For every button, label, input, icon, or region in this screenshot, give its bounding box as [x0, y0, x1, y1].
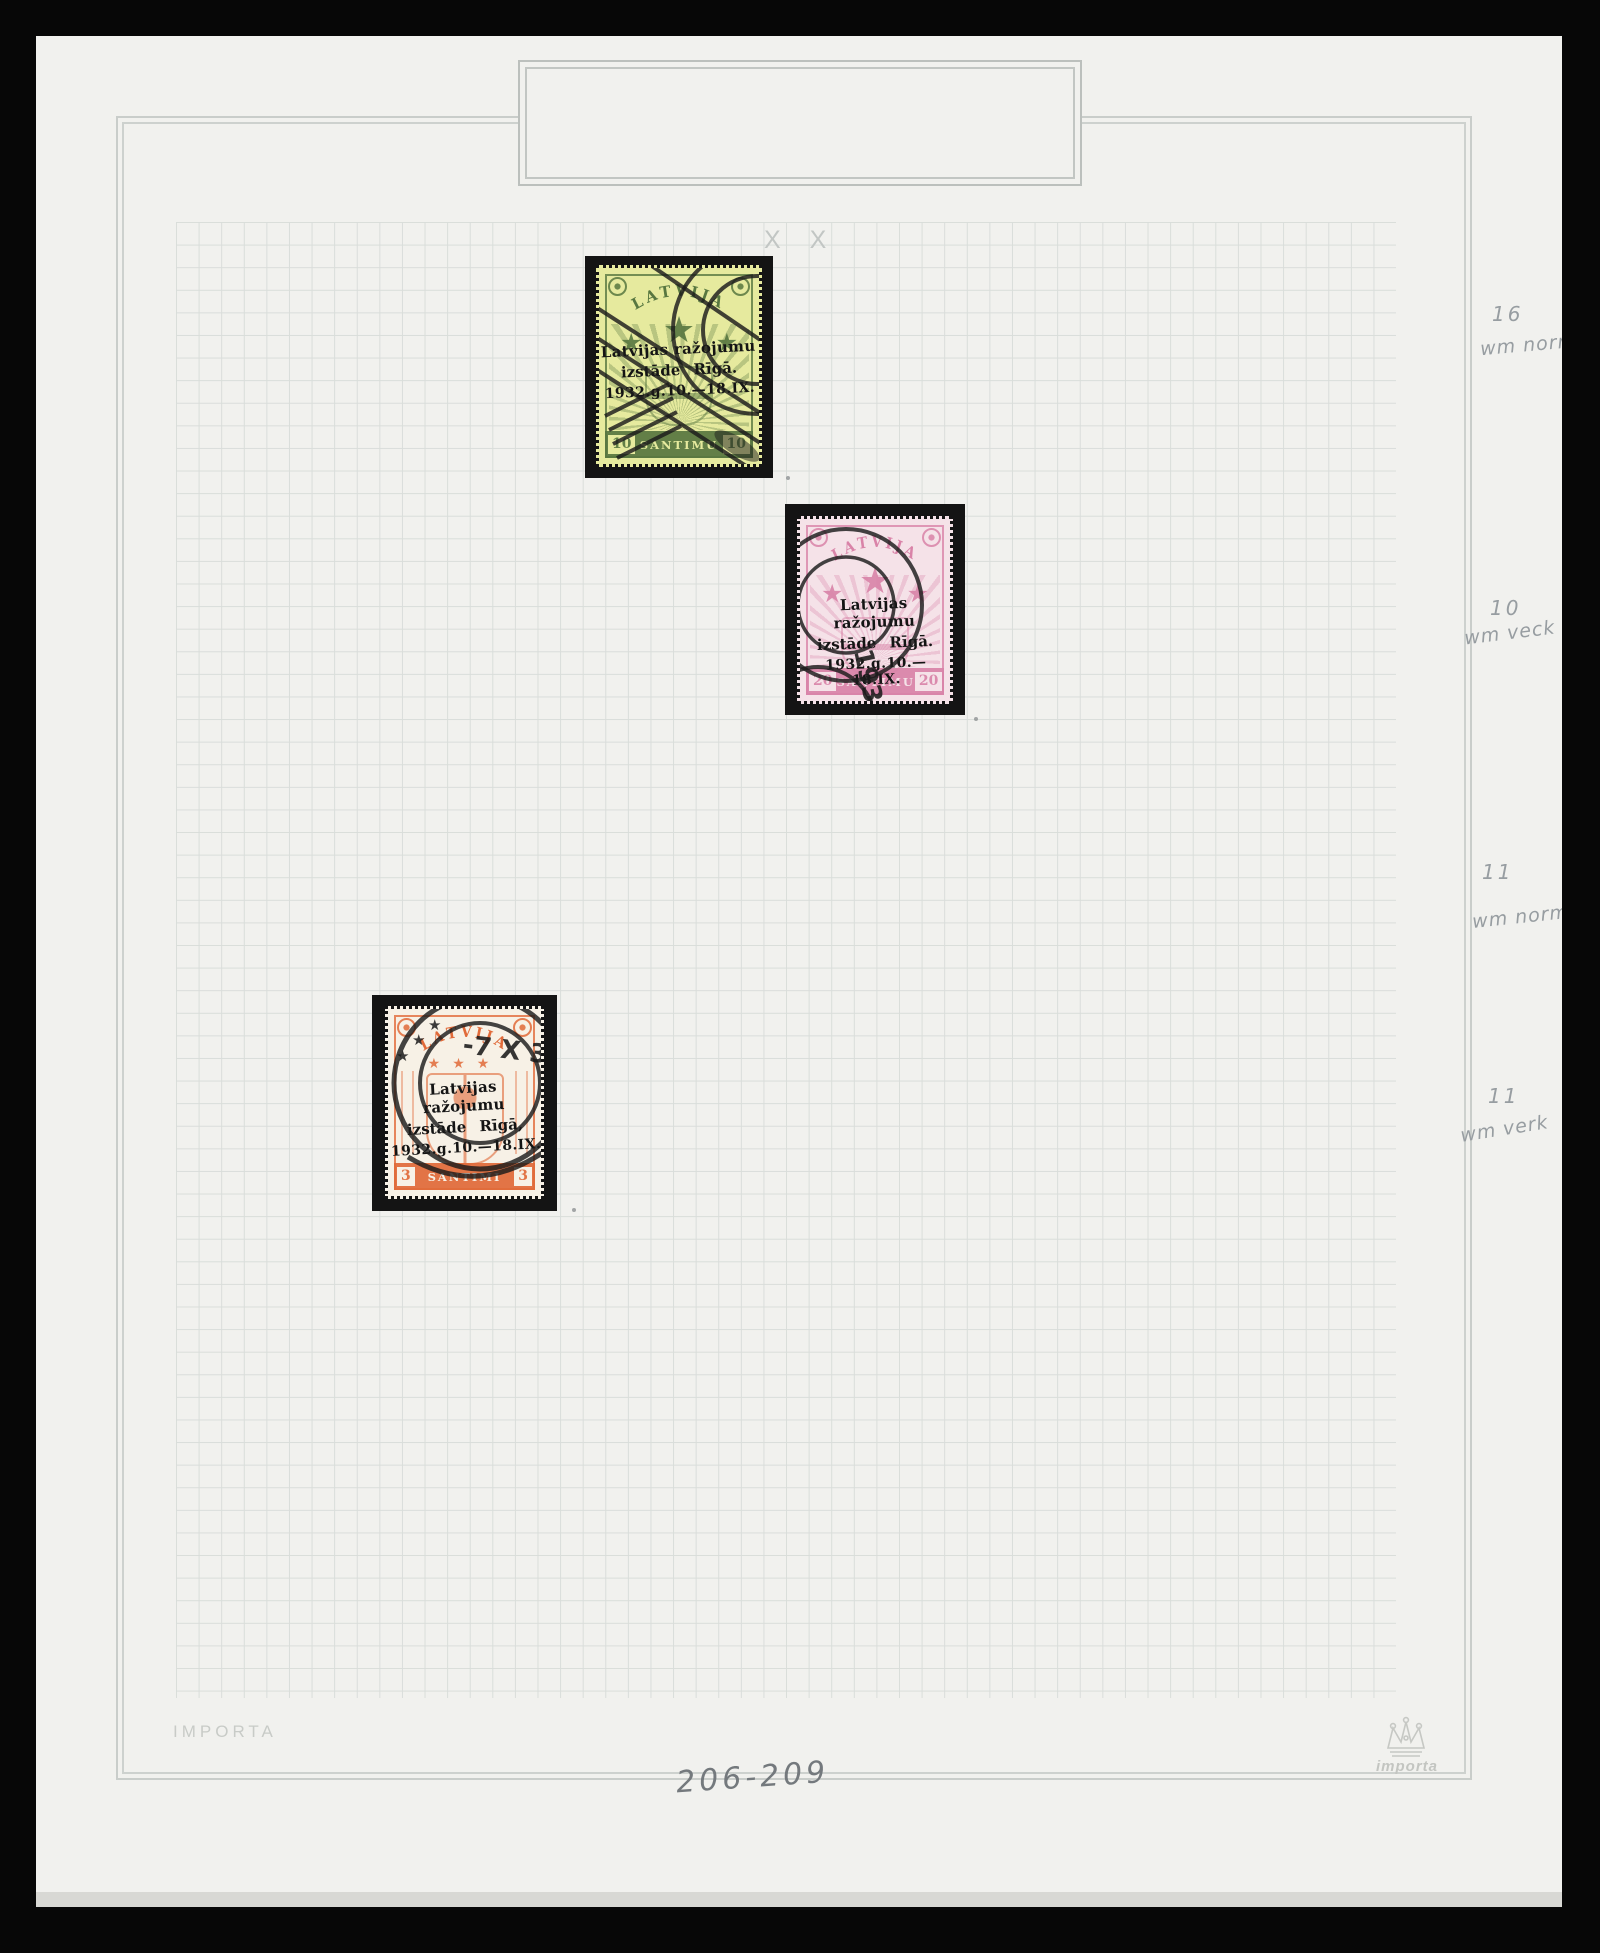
annotation-wm-4: 11 wm verk [1460, 1084, 1549, 1140]
stamp-mount: LATVIJA ★★★ Latvijas ražojumu izstāde Rī… [372, 995, 557, 1211]
annotation-text: wm veck [1463, 617, 1556, 650]
star-icon: ★ [396, 1048, 409, 1065]
star-icon: ★ [412, 1032, 425, 1049]
title-box [518, 60, 1082, 186]
title-box-inner-line [525, 67, 1075, 179]
stamp-rose-20s: LATVIJA ★ ★ ★ Latvijas ražojumu izstāde … [797, 516, 953, 704]
annotation-number: 11 [1488, 1084, 1549, 1108]
position-dot [572, 1208, 576, 1212]
scanned-album-photo: X X LATVIJA ★ ★ ★ [0, 0, 1600, 1953]
publisher-imprint: IMPORTA [173, 1722, 277, 1742]
importa-logo: importa [1376, 1716, 1436, 1775]
annotation-wm-2: 10 wm veck [1464, 596, 1555, 644]
position-dot [786, 476, 790, 480]
annotation-number: 11 [1482, 860, 1562, 884]
stamp-mount: LATVIJA ★ ★ ★ Latvijas ražojumu izstāde … [785, 504, 965, 715]
postmark-circle-icon: ★ ★ ★ -7 X 32 [388, 1009, 541, 1196]
postmark-circle-icon: 1932 [800, 519, 950, 701]
annotation-text: wm norm [1479, 330, 1562, 360]
postmark-lines-icon [599, 268, 759, 464]
stamp-green-10s: LATVIJA ★ ★ ★ Latvijas ražojumu izstāde … [596, 265, 762, 467]
annotation-text: wm verk [1459, 1111, 1550, 1147]
annotation-wm-1: 16 wm norm [1480, 302, 1562, 356]
annotation-wm-3: 11 wm norm [1472, 860, 1562, 928]
stamp-orange-3s: LATVIJA ★★★ Latvijas ražojumu izstāde Rī… [385, 1006, 544, 1199]
grid-mark: X X [764, 226, 837, 255]
postmark-date-text: 1932 [847, 646, 891, 701]
page-bottom-shadow [36, 1892, 1562, 1907]
stamp-mount: LATVIJA ★ ★ ★ Latvijas ražojumu izstāde … [585, 256, 773, 478]
annotation-number: 16 [1492, 302, 1562, 326]
album-page: X X LATVIJA ★ ★ ★ [36, 36, 1562, 1892]
position-dot [974, 717, 978, 721]
importa-crown-icon [1380, 1716, 1432, 1758]
postmark-date-text: -7 X 32 [461, 1030, 541, 1072]
annotation-text: wm norm [1471, 901, 1562, 933]
importa-logo-text: importa [1376, 1758, 1436, 1775]
grid-paper [176, 222, 1396, 1698]
star-icon: ★ [428, 1017, 441, 1034]
